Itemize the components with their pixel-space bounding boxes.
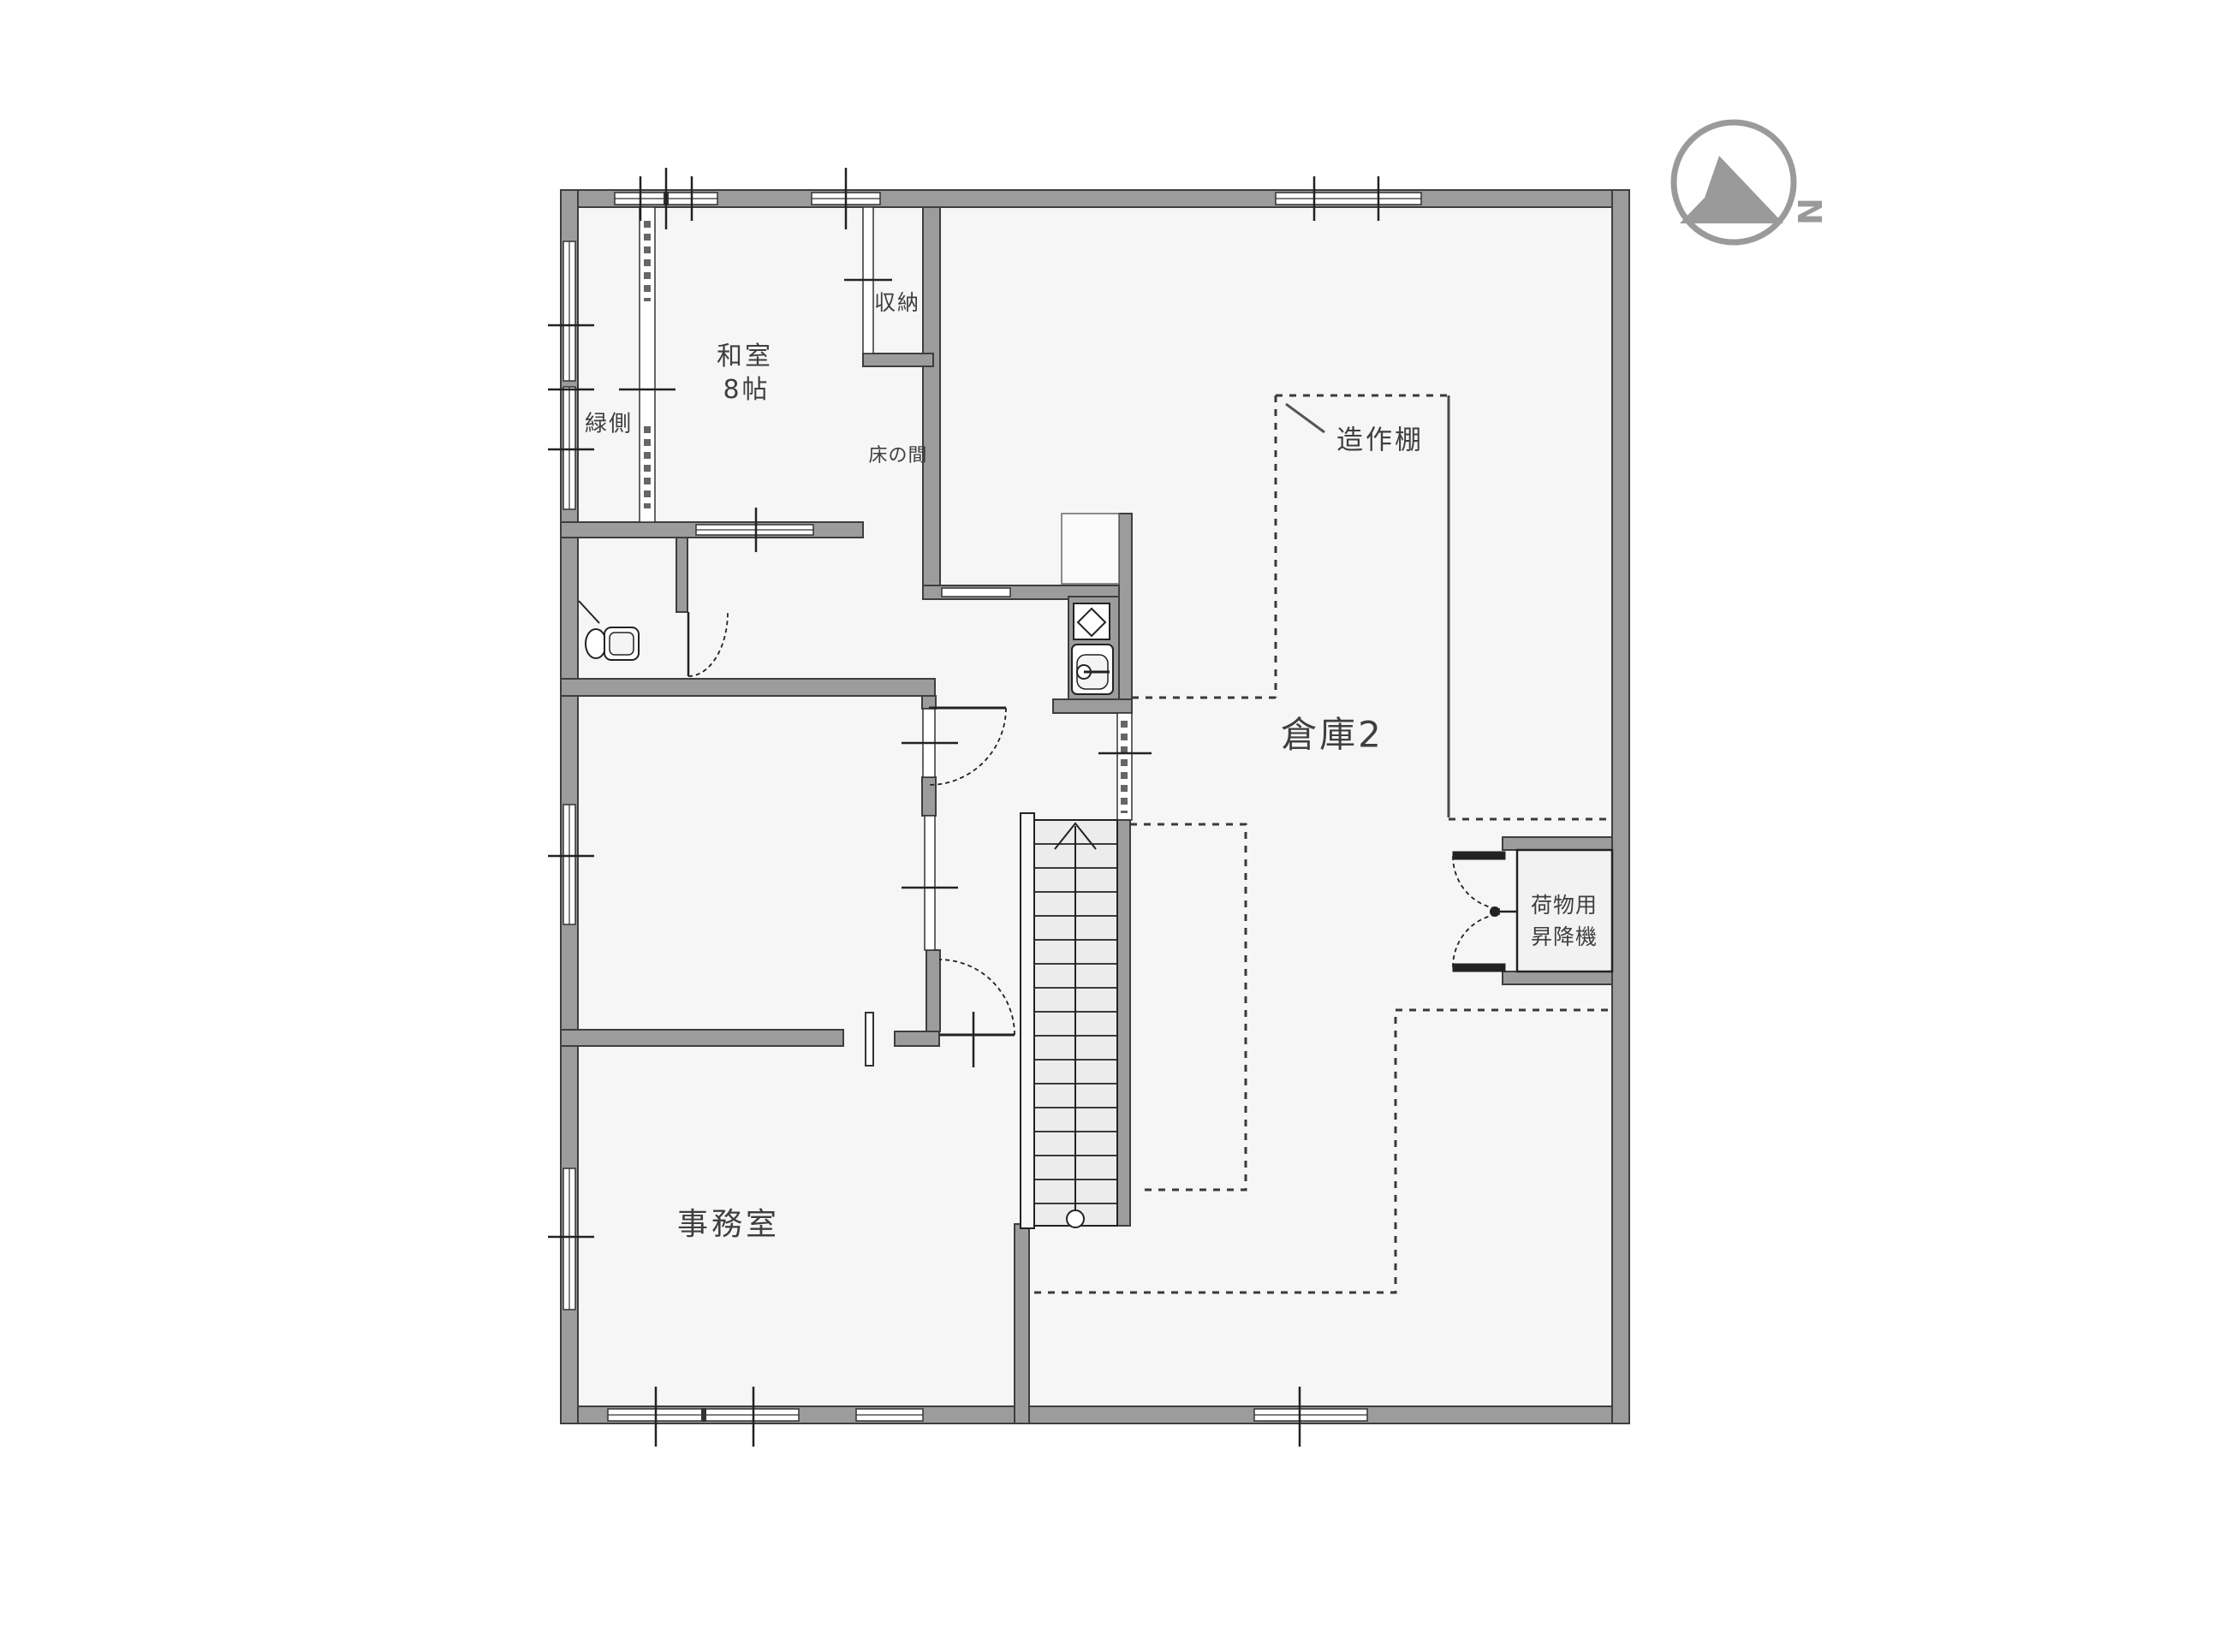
room-label-engawa: 緑側 [585,407,633,438]
sink-unit [1068,597,1119,699]
room-label-closet: 収納 [874,286,920,317]
counter-niche [1062,514,1119,584]
compass-north-arrow-icon [1680,156,1783,223]
room-label-washitsu-size: 8帖 [723,368,770,406]
floorplan-page: 和室 8帖 緑側 収納 床の間 造作棚 倉庫2 荷物用 昇降機 事務室 N [0,0,2226,1652]
floorplan-drawing [0,0,2226,1652]
room-label-cargo-lift-line2: 昇降機 [1531,920,1598,951]
room-label-warehouse: 倉庫2 [1281,706,1384,758]
compass [1674,122,1794,242]
toilet-bowl-icon [586,629,606,658]
room-label-washitsu: 和室 [717,335,773,372]
label-built-in-shelf: 造作棚 [1336,419,1424,457]
room-label-cargo-lift-line1: 荷物用 [1531,888,1598,919]
compass-north-label: N [1790,198,1828,225]
room-label-office: 事務室 [677,1199,780,1244]
staircase [1021,813,1130,1228]
room-label-tokonoma: 床の間 [868,440,927,467]
